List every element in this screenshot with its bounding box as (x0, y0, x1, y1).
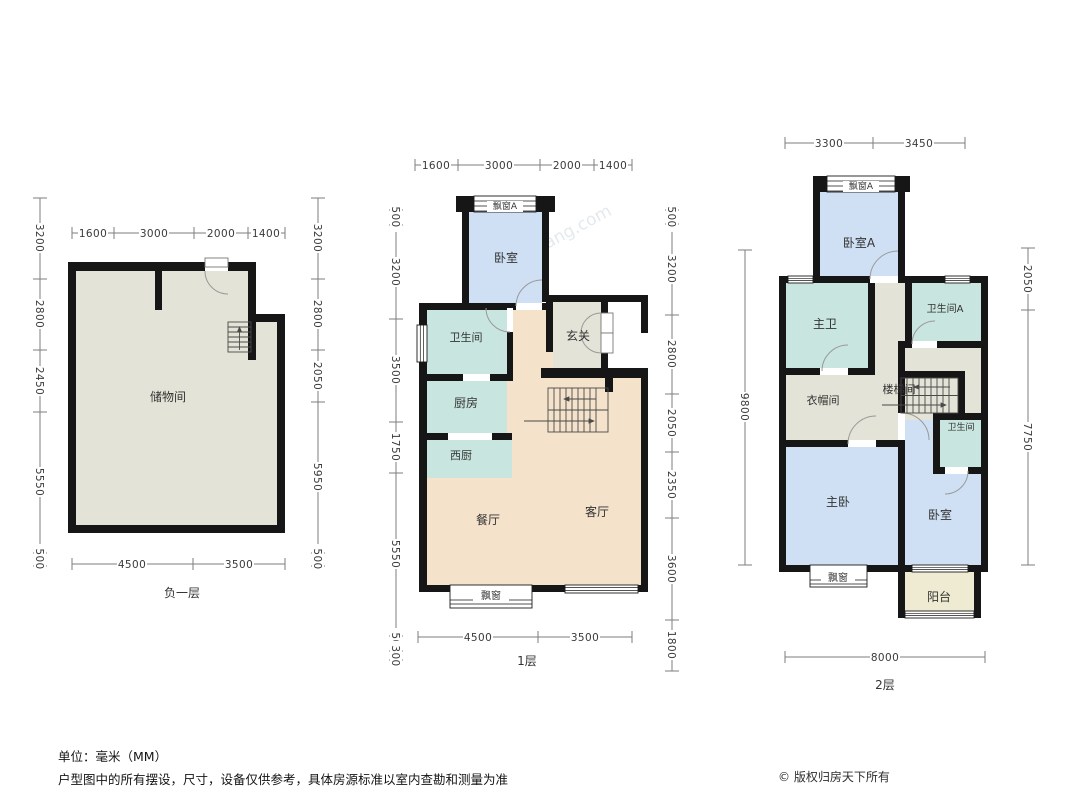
dim-line-top (785, 137, 965, 149)
room-label-living: 客厅 (585, 504, 609, 519)
dim-label: 1750 (389, 432, 402, 462)
dim-label: 1600 (421, 159, 451, 172)
west-kitchen-opening (448, 433, 492, 440)
dim-label: 2000 (206, 227, 236, 240)
svg-text:2000: 2000 (207, 228, 235, 240)
floor-label-basement: 负一层 (164, 586, 200, 600)
dim-label: 2450 (33, 366, 46, 396)
dim-label: 3000 (484, 159, 514, 172)
svg-text:3600: 3600 (665, 555, 677, 583)
svg-text:3450: 3450 (905, 138, 933, 150)
dim-label: 1400 (598, 159, 628, 172)
door-leaf (205, 258, 228, 267)
bedroom-door-opening (516, 303, 542, 310)
floor1-plan: 飘窗A 飘窗 卧室 卫生间 玄关 厨房 西厨 餐厅 客厅 (389, 159, 679, 671)
svg-text:3300: 3300 (815, 138, 843, 150)
dim-label: 8000 (870, 651, 900, 664)
copyright-note: © 版权归房天下所有 (778, 769, 890, 784)
room-label-master-bath: 主卫 (813, 317, 837, 331)
room-label-bath: 卫生间 (450, 330, 483, 344)
svg-text:8000: 8000 (871, 652, 899, 664)
room-label-cloakroom: 衣帽间 (807, 393, 840, 407)
room-label-dining: 餐厅 (476, 512, 500, 527)
dim-label: 5550 (33, 467, 46, 497)
dim-label: 3300 (814, 137, 844, 150)
dim-label: 3500 (224, 558, 254, 571)
svg-text:2050: 2050 (1021, 265, 1033, 293)
bay-window-a: 飘窗A (827, 176, 895, 192)
bedroom-a-floor (820, 192, 898, 276)
bay-window-bottom: 飘窗 (450, 585, 532, 608)
bay-window-a-label: 飘窗A (849, 180, 874, 192)
svg-text:5950: 5950 (311, 463, 323, 491)
dim-label: 2800 (665, 339, 678, 369)
master-bath-window (788, 276, 813, 283)
floorplan-canvas: 房天下fang.com 房天下fang.com 房天下fang.com 储物间 … (0, 0, 1066, 800)
basement-plan: 储物间 1600 3000 2000 1400 4500 3500 3200 2… (33, 198, 325, 600)
floor2-plan: 飘窗A 飘窗 卧 (738, 137, 1035, 692)
room-label-bedroom-a: 卧室A (843, 235, 876, 250)
dim-label: 3600 (665, 554, 678, 584)
dim-label: 1400 (251, 227, 281, 240)
dim-label: 7750 (1021, 422, 1034, 452)
svg-text:1600: 1600 (422, 160, 450, 172)
svg-text:300: 300 (389, 645, 401, 666)
bay-window-a: 飘窗A (474, 196, 536, 212)
room-label-foyer: 玄关 (566, 328, 590, 343)
dim-label: 4500 (463, 631, 493, 644)
svg-text:3200: 3200 (389, 258, 401, 286)
svg-text:3000: 3000 (485, 160, 513, 172)
bedroom-a-door-opening (870, 276, 898, 283)
svg-text:2800: 2800 (311, 300, 323, 328)
room-label-storage: 储物间 (150, 389, 186, 404)
dim-line-right (1021, 248, 1035, 565)
room-label-west-kitchen: 西厨 (450, 449, 472, 462)
svg-text:3200: 3200 (33, 224, 45, 252)
svg-text:500: 500 (665, 206, 677, 227)
svg-text:3500: 3500 (571, 632, 599, 644)
svg-text:1600: 1600 (79, 228, 107, 240)
bath-a-door-opening (912, 341, 937, 348)
svg-text:2450: 2450 (33, 367, 45, 395)
dim-label: 3450 (904, 137, 934, 150)
room-label-bedroom: 卧室 (494, 250, 518, 265)
svg-text:7750: 7750 (1021, 423, 1033, 451)
dim-label: 3200 (311, 223, 324, 253)
svg-text:2050: 2050 (665, 409, 677, 437)
svg-text:1750: 1750 (389, 433, 401, 461)
svg-text:5550: 5550 (389, 540, 401, 568)
dim-label: 500 (311, 544, 324, 574)
dim-label: 2800 (33, 299, 46, 329)
room-label-stairwell: 楼梯间 (883, 382, 916, 396)
svg-text:3000: 3000 (140, 228, 168, 240)
svg-text:3200: 3200 (311, 224, 323, 252)
dim-label: 300 (389, 641, 402, 671)
dim-label: 3500 (570, 631, 600, 644)
dim-label: 5950 (311, 462, 324, 492)
entry-door-leaf (601, 333, 613, 353)
dim-label: 500 (665, 202, 678, 232)
svg-text:2800: 2800 (33, 300, 45, 328)
dim-label: 3000 (139, 227, 169, 240)
dim-label: 1600 (78, 227, 108, 240)
disclaimer-note: 户型图中的所有摆设，尺寸，设备仅供参考，具体房源标准以室内查勘和测量为准 (58, 772, 508, 787)
floorplan-page: 房天下fang.com 房天下fang.com 房天下fang.com 储物间 … (0, 0, 1066, 800)
bath-a-window (945, 276, 970, 283)
room-label-bath: 卫生间 (947, 421, 974, 433)
svg-text:3500: 3500 (389, 356, 401, 384)
cloakroom-door-opening (820, 368, 848, 375)
bay-window-label: 飘窗 (481, 589, 501, 602)
svg-text:3200: 3200 (665, 255, 677, 283)
kitchen-door-opening (463, 374, 490, 381)
dim-label: 500 (33, 544, 46, 574)
dim-label: 500 (389, 202, 402, 232)
svg-text:500: 500 (311, 548, 323, 569)
dim-label: 2350 (665, 470, 678, 500)
room-label-master-bedroom: 主卧 (826, 495, 850, 509)
dim-label: 2800 (311, 299, 324, 329)
room-label-balcony: 阳台 (927, 589, 951, 604)
dim-label: 2000 (552, 159, 582, 172)
bay-window-a-label: 飘窗A (493, 200, 518, 212)
footer: 单位：毫米（MM） 户型图中的所有摆设，尺寸，设备仅供参考，具体房源标准以室内查… (58, 749, 890, 787)
svg-text:2000: 2000 (553, 160, 581, 172)
bath-window (417, 325, 427, 362)
balcony-door-window (912, 565, 968, 572)
dim-label: 3200 (665, 254, 678, 284)
bedroom-door-opening (898, 413, 905, 440)
bay-window-label: 飘窗 (828, 571, 848, 584)
dim-label: 9800 (738, 392, 751, 422)
room-label-bath-a: 卫生间A (927, 302, 964, 315)
svg-text:2800: 2800 (665, 340, 677, 368)
dim-label: 4500 (117, 558, 147, 571)
svg-text:1400: 1400 (252, 228, 280, 240)
dim-label: 3200 (389, 257, 402, 287)
svg-text:1400: 1400 (599, 160, 627, 172)
svg-text:2050: 2050 (311, 362, 323, 390)
master-bedroom-door-opening (848, 440, 876, 447)
svg-text:500: 500 (33, 548, 45, 569)
dim-label: 2050 (665, 408, 678, 438)
dim-label: 1800 (665, 630, 678, 660)
bay-window-bottom: 飘窗 (810, 565, 867, 587)
svg-text:5550: 5550 (33, 468, 45, 496)
svg-text:4500: 4500 (118, 559, 146, 571)
room-label-bedroom: 卧室 (928, 507, 952, 522)
balcony-railing (905, 611, 974, 618)
svg-text:500: 500 (389, 206, 401, 227)
bath-door-opening (945, 467, 968, 474)
svg-text:2350: 2350 (665, 471, 677, 499)
dim-label: 5550 (389, 539, 402, 569)
floor-label-floor2: 2层 (875, 678, 895, 692)
unit-note: 单位：毫米（MM） (58, 749, 167, 764)
dim-label: 2050 (311, 361, 324, 391)
dim-label: 2050 (1021, 264, 1034, 294)
bath-door-opening (507, 308, 513, 332)
svg-text:3500: 3500 (225, 559, 253, 571)
living-room-window (565, 585, 638, 593)
entry-door-leaf (601, 313, 613, 333)
room-label-kitchen: 厨房 (454, 395, 478, 410)
dim-label: 3200 (33, 223, 46, 253)
svg-text:4500: 4500 (464, 632, 492, 644)
svg-text:9800: 9800 (738, 393, 750, 421)
dim-label: 3500 (389, 355, 402, 385)
svg-text:1800: 1800 (665, 631, 677, 659)
floor-label-floor1: 1层 (517, 654, 537, 668)
